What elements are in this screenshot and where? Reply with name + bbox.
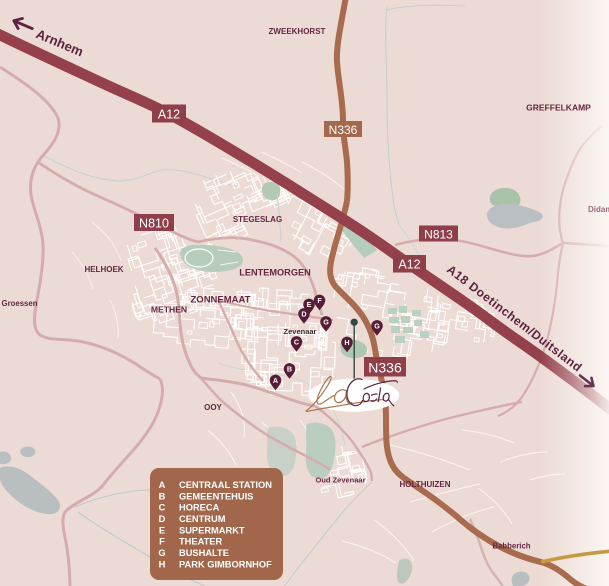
svg-text:C: C (159, 503, 166, 513)
svg-text:D: D (301, 309, 306, 318)
svg-text:Didam: Didam (588, 205, 609, 214)
svg-text:E: E (159, 525, 165, 535)
svg-text:LENTEMORGEN: LENTEMORGEN (239, 268, 311, 278)
svg-text:CENTRAAL STATION: CENTRAAL STATION (179, 480, 272, 490)
svg-text:HELHOEK: HELHOEK (84, 265, 123, 274)
svg-text:A: A (273, 376, 278, 385)
svg-text:STEGESLAG: STEGESLAG (233, 215, 282, 224)
svg-text:THEATER: THEATER (179, 537, 222, 547)
svg-text:PARK GIMBORNHOF: PARK GIMBORNHOF (179, 559, 272, 569)
svg-text:E: E (307, 300, 312, 309)
svg-text:GEMEENTEHUIS: GEMEENTEHUIS (179, 491, 253, 501)
svg-text:CENTRUM: CENTRUM (179, 514, 226, 524)
svg-text:H: H (344, 338, 349, 347)
svg-text:HORECA: HORECA (179, 503, 220, 513)
svg-text:GREFFELKAMP: GREFFELKAMP (526, 103, 591, 113)
svg-text:G: G (323, 317, 329, 326)
svg-text:F: F (317, 296, 322, 305)
svg-text:A12: A12 (158, 108, 180, 122)
svg-text:D: D (159, 514, 166, 524)
svg-text:HOLTHUIZEN: HOLTHUIZEN (400, 480, 451, 489)
svg-text:H: H (159, 559, 166, 569)
svg-text:Babberich: Babberich (492, 541, 530, 550)
svg-text:F: F (159, 537, 165, 547)
svg-text:N813: N813 (424, 228, 453, 242)
svg-text:B: B (287, 364, 292, 373)
svg-text:BUSHALTE: BUSHALTE (179, 548, 229, 558)
svg-text:G: G (374, 321, 380, 330)
svg-text:Oud Zevenaar: Oud Zevenaar (315, 476, 365, 485)
svg-text:OOY: OOY (204, 403, 222, 412)
svg-text:Zevenaar: Zevenaar (284, 327, 317, 336)
svg-text:N336: N336 (368, 360, 402, 376)
svg-text:C: C (294, 337, 299, 346)
svg-text:B: B (159, 491, 166, 501)
svg-text:A12: A12 (398, 258, 420, 272)
svg-text:N810: N810 (139, 217, 169, 231)
svg-text:ZONNEMAAT: ZONNEMAAT (191, 295, 251, 306)
svg-text:ZWEEKHORST: ZWEEKHORST (269, 27, 326, 36)
svg-text:A: A (159, 480, 166, 490)
svg-text:METHEN: METHEN (151, 305, 187, 315)
svg-text:N336: N336 (329, 123, 358, 137)
svg-text:Groessen: Groessen (2, 299, 38, 308)
svg-text:G: G (158, 548, 165, 558)
svg-text:SUPERMARKT: SUPERMARKT (179, 525, 245, 535)
